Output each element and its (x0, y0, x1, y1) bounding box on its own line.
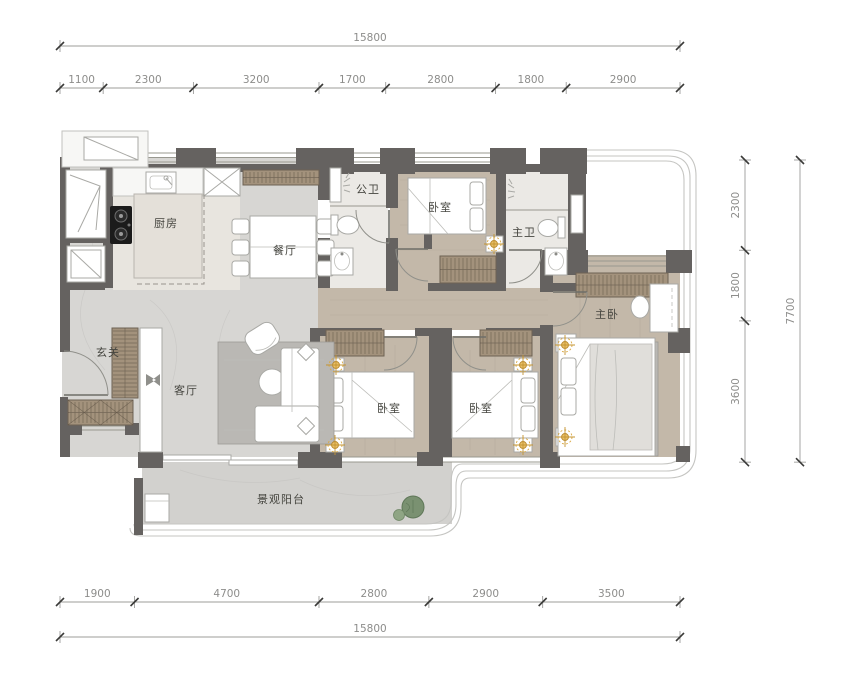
dim-label: 3500 (598, 588, 625, 600)
dim-label: 2300 (730, 192, 742, 219)
foyer-tall-cabinet (112, 328, 138, 398)
label-bedroom-right: 卧室 (469, 401, 493, 415)
floor-plan-canvas: 厨房 餐厅 公卫 卧室 主卫 主卧 玄关 客厅 卧室 卧室 景观阳台 11002… (0, 0, 852, 678)
dim-label: 2800 (361, 588, 388, 600)
dim-label: 1800 (518, 74, 545, 86)
bath-shelf (330, 168, 341, 202)
wardrobe-bedroom-left (326, 330, 384, 356)
equipment-platform (62, 131, 148, 167)
dim-chain-h: 15800 (56, 32, 684, 52)
balcony-cabinet (145, 494, 169, 522)
dim-label: 15800 (353, 623, 386, 635)
dim-label: 1100 (68, 74, 95, 86)
dim-label: 1900 (84, 588, 111, 600)
dim-label: 15800 (353, 32, 386, 44)
dim-label: 3600 (730, 378, 742, 405)
sink-public (331, 248, 353, 275)
tv-wall (140, 328, 162, 452)
dim-label: 2300 (135, 74, 162, 86)
dim-label: 1700 (339, 74, 366, 86)
label-master-bedroom: 主卧 (595, 308, 619, 321)
utility-room (66, 170, 106, 282)
kitchen-island (134, 194, 202, 278)
dim-label: 4700 (213, 588, 240, 600)
dim-label: 1800 (730, 272, 742, 299)
label-bedroom-left: 卧室 (377, 401, 401, 415)
dim-label: 2800 (427, 74, 454, 86)
label-master-bath: 主卫 (512, 226, 536, 239)
foyer-shoe-cabinet (68, 400, 133, 425)
label-dining: 餐厅 (273, 243, 297, 257)
desk-chair (631, 296, 649, 318)
toilet-public (331, 215, 359, 235)
label-public-bath: 公卫 (356, 183, 380, 196)
wardrobe-bedroom-right (480, 330, 532, 356)
label-balcony: 景观阳台 (257, 492, 305, 506)
dim-label: 7700 (785, 298, 797, 325)
dim-label: 2900 (472, 588, 499, 600)
dim-chain-v: 7700 (785, 156, 806, 466)
corridor-floor (318, 288, 553, 330)
dim-chain-h: 19004700280029003500 (56, 588, 684, 608)
bath-niche (571, 195, 583, 233)
label-bedroom-top: 卧室 (428, 200, 452, 214)
kitchen-sink (146, 172, 176, 193)
dining-sideboard (243, 170, 319, 185)
dim-label: 2900 (610, 74, 637, 86)
dim-chain-v: 230018003600 (730, 156, 751, 466)
label-kitchen: 厨房 (154, 217, 178, 230)
sink-master (545, 248, 567, 275)
bed-right (452, 372, 538, 438)
wardrobe-bedroom-top (440, 256, 496, 283)
dim-chain-h: 1100230032001700280018002900 (56, 74, 684, 94)
bed-master (558, 338, 655, 456)
dim-chain-h: 15800 (56, 623, 684, 643)
label-living: 客厅 (174, 383, 198, 397)
floor-plan-drawing: 厨房 餐厅 公卫 卧室 主卫 主卧 玄关 客厅 卧室 卧室 景观阳台 11002… (0, 0, 852, 678)
desk (650, 284, 678, 332)
label-foyer: 玄关 (96, 345, 120, 359)
stove (110, 206, 132, 244)
dim-label: 3200 (243, 74, 270, 86)
